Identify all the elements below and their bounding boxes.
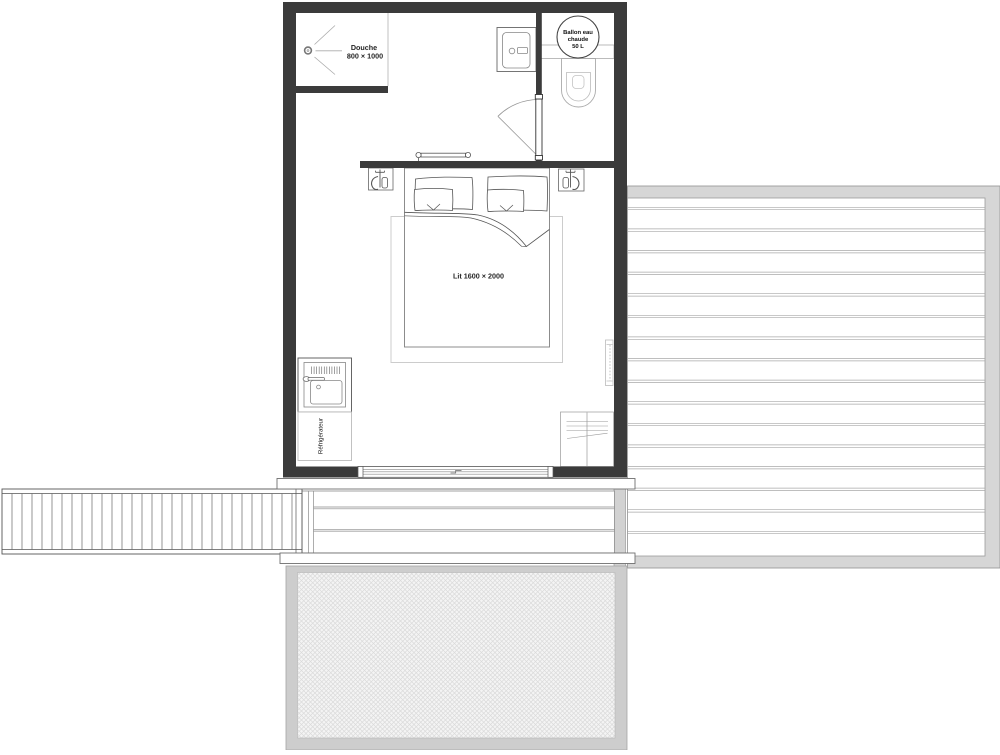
- svg-text:800 × 1000: 800 × 1000: [347, 52, 383, 61]
- svg-text:Ballon eau: Ballon eau: [563, 29, 593, 36]
- svg-text:50 L: 50 L: [572, 43, 584, 50]
- svg-text:chaude: chaude: [568, 36, 589, 43]
- svg-text:Réfrigérateur: Réfrigérateur: [318, 418, 325, 454]
- svg-text:Lit 1600 × 2000: Lit 1600 × 2000: [453, 272, 504, 281]
